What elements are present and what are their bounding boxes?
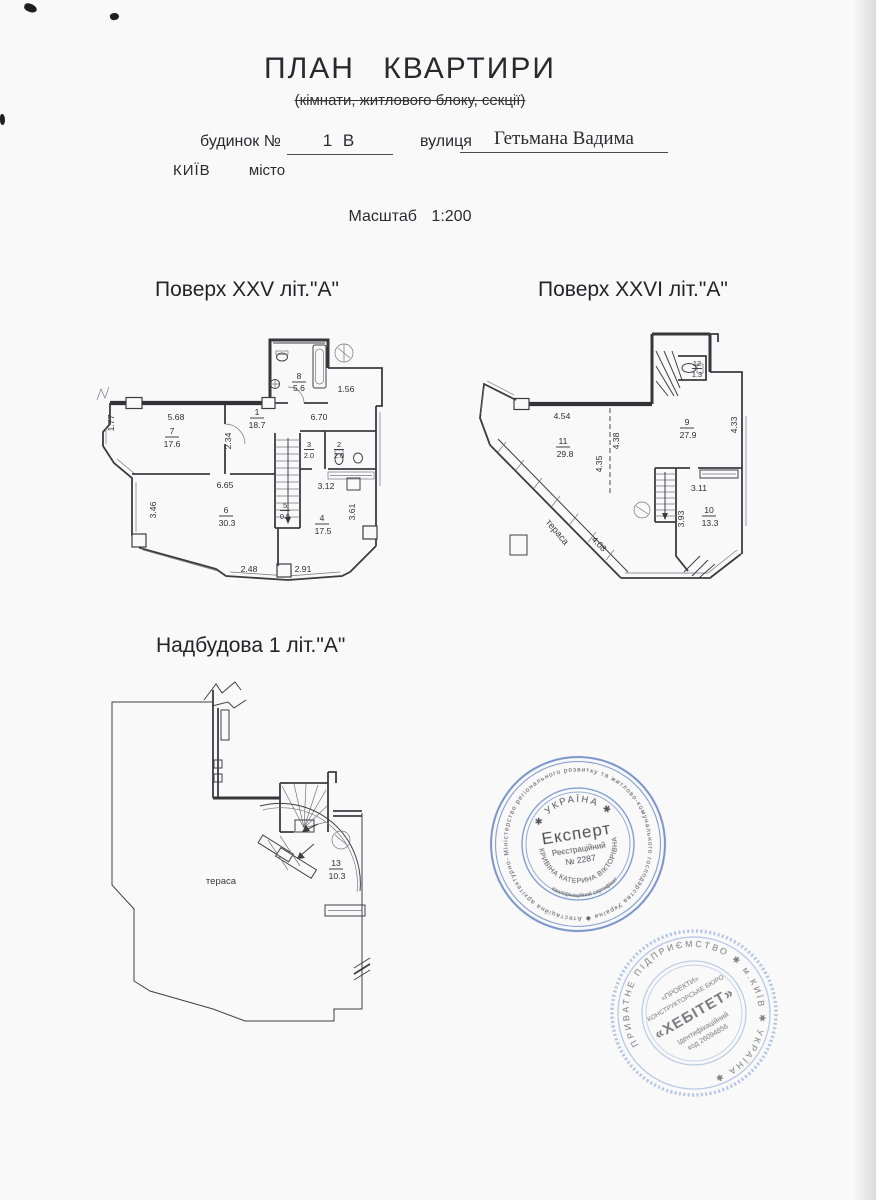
dimension-label: 4.35: [594, 455, 604, 472]
room-area: 0.5: [280, 512, 290, 521]
dimension-label: 1.77: [106, 414, 116, 431]
room-number: 7: [170, 426, 175, 436]
plan-nadbudova-labels: тераса 13 10.3: [206, 858, 346, 887]
document-subtitle: (кімнати, житлового блоку, секції): [210, 92, 610, 109]
room-number: 3: [307, 440, 311, 449]
room-area: 29.8: [557, 449, 574, 459]
room-number: 5: [283, 501, 287, 510]
city-row: КИЇВ місто: [173, 162, 285, 179]
room-number: 13: [331, 858, 341, 868]
room-number: 1: [255, 407, 260, 417]
room-area: 30.3: [219, 518, 236, 528]
floor-plan-xxvi: 12 1.3 4.54 9 27.9 4.33 11 29.8 4.38 4.3…: [478, 326, 803, 604]
room-area: 27.9: [680, 430, 697, 440]
room-number: 10: [704, 505, 714, 515]
dimension-label: 4.33: [729, 416, 739, 433]
floor-plan-xxv: 5.68 1 18.7 6.70 1.77 7 17.6 2.34 8 5.6 …: [92, 328, 392, 590]
dimension-label: 3.93: [676, 510, 686, 527]
dimension-label: 4.38: [611, 432, 621, 449]
scan-artifact: [0, 114, 5, 125]
room-number: 2: [337, 440, 341, 449]
building-number-value: 1 В: [287, 131, 393, 155]
dimension-label: 6.65: [217, 480, 234, 490]
plan-xxvi-title: Поверх XXVI літ."А": [538, 278, 728, 302]
scan-artifact: [23, 2, 38, 14]
city-name: КИЇВ: [173, 162, 211, 179]
street-name-value: Гетьмана Вадима: [460, 128, 668, 153]
scan-artifact: [109, 12, 119, 21]
dimension-label: 4.54: [554, 411, 571, 421]
floor-plan-nadbudova: тераса 13 10.3: [108, 678, 403, 1030]
expert-round-stamp: Міністерство регіонального розвитку та ж…: [469, 735, 686, 952]
plan-nadbudova-title: Надбудова 1 літ."А": [156, 634, 345, 658]
scan-edge-shadow: [852, 0, 876, 1200]
walls: [112, 682, 370, 1021]
scale-label: Масштаб: [349, 208, 417, 225]
dimension-label: 6.70: [311, 412, 328, 422]
room-area: 5.6: [293, 383, 305, 393]
walls: [97, 340, 382, 580]
dimension-label: 3.46: [148, 501, 158, 518]
scanned-floor-plan-page: ПЛАН КВАРТИРИ (кімнати, житлового блоку,…: [0, 0, 876, 1200]
dimension-label: 2.48: [241, 564, 258, 574]
room-number: 12: [693, 359, 701, 368]
room-number: 4: [320, 513, 325, 523]
room-area: 17.6: [164, 439, 181, 449]
scale-row: Масштаб 1:200: [210, 208, 610, 226]
room-area: 18.7: [249, 420, 266, 430]
city-label: місто: [249, 162, 285, 179]
room-area: 17.5: [315, 526, 332, 536]
dimension-label: 2.91: [295, 564, 312, 574]
room-area: 1.3: [692, 370, 702, 379]
scale-value: 1:200: [431, 208, 471, 225]
dimension-label: 2.34: [223, 432, 233, 449]
terrace-label: тераса: [543, 517, 571, 548]
room-number: 9: [685, 417, 690, 427]
plan-xxv-title: Поверх XXV літ."А": [155, 278, 339, 302]
dimension-label: 4.08: [590, 534, 609, 553]
plan-xxvi-labels: 12 1.3 4.54 9 27.9 4.33 11 29.8 4.38 4.3…: [543, 359, 739, 554]
room-number: 11: [559, 436, 568, 446]
room-area: 2.0: [304, 451, 314, 460]
document-title: ПЛАН КВАРТИРИ: [210, 52, 610, 86]
building-label: будинок №: [200, 133, 281, 151]
dimension-label: 5.68: [168, 412, 185, 422]
room-area: 10.3: [329, 871, 346, 881]
room-area: 13.3: [702, 518, 719, 528]
terrace-label: тераса: [206, 876, 237, 887]
dimension-label: 3.61: [347, 503, 357, 520]
room-number: 6: [224, 505, 229, 515]
dimension-label: 3.12: [318, 481, 335, 491]
room-number: 8: [297, 371, 302, 381]
walls: [480, 334, 746, 578]
dimension-label: 3.11: [691, 483, 707, 493]
building-street-row: будинок № 1 В вулиця Гетьмана Вадима: [0, 131, 876, 155]
dimension-label: 1.56: [338, 384, 355, 394]
room-area: 2.0: [334, 451, 344, 460]
